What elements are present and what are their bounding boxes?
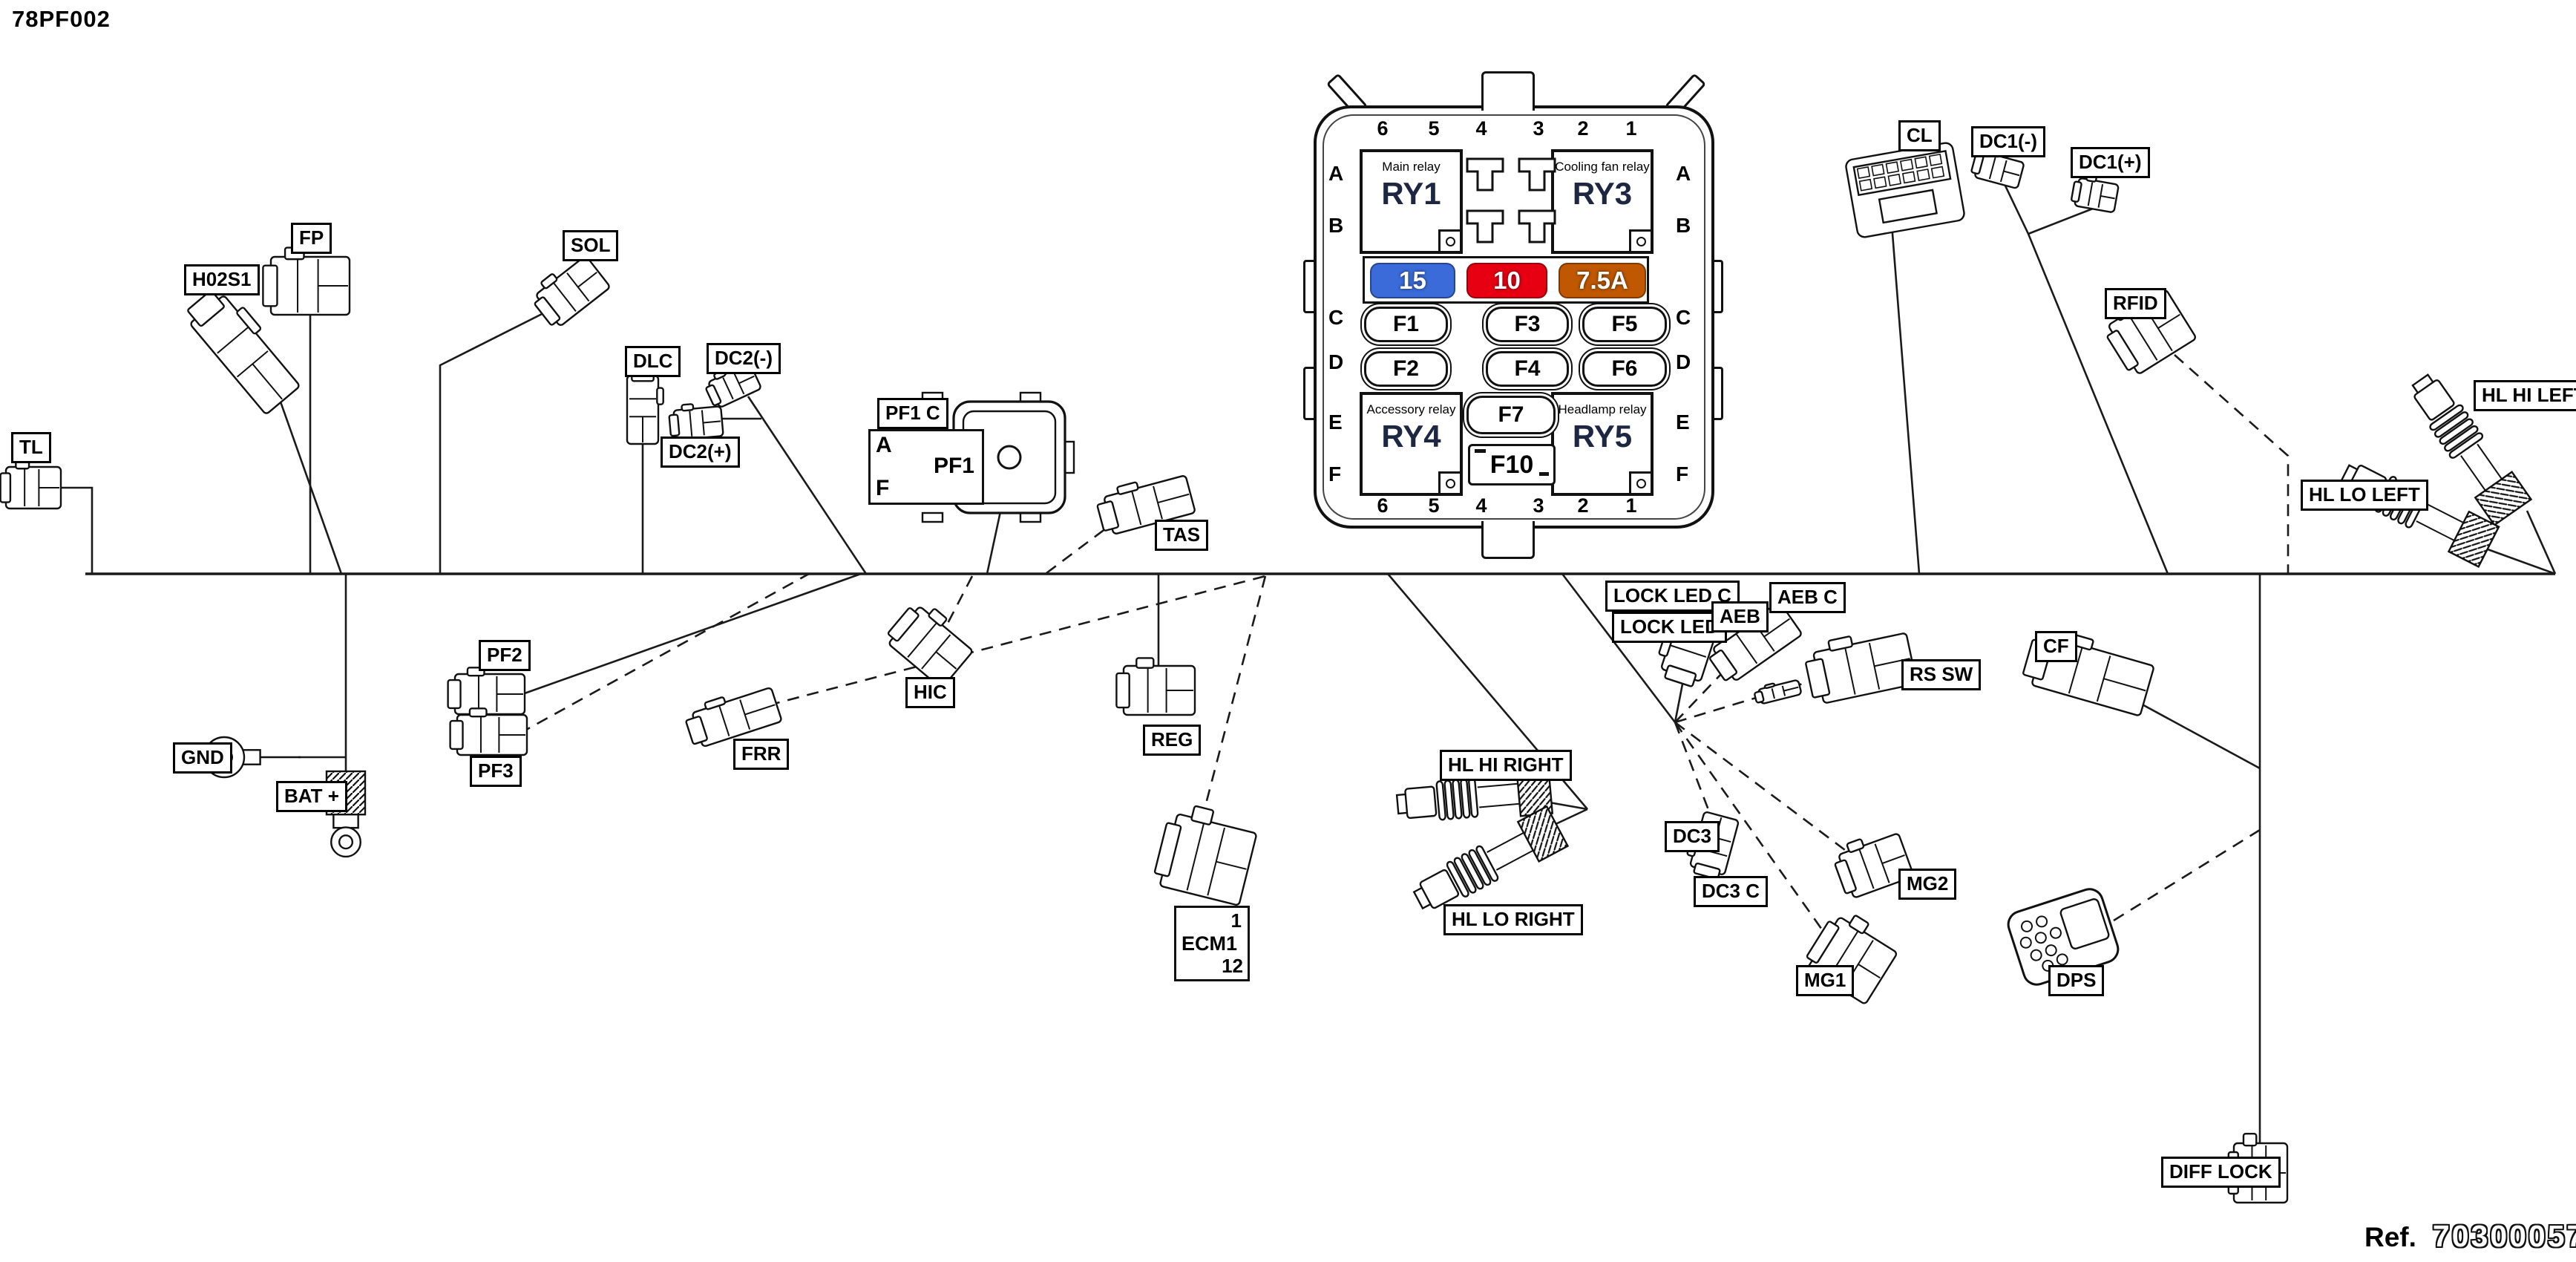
label-pf2: PF2 <box>479 640 531 671</box>
relay-RY5: Headlamp relay RY5 <box>1551 392 1654 496</box>
sol-connector-icon <box>526 250 610 330</box>
label-hl-lo-right: HL LO RIGHT <box>1443 904 1583 935</box>
fusebox-tab-bottom <box>1481 521 1535 559</box>
pin-top-5: 5 <box>1428 117 1439 140</box>
hl-lo-right-connector-icon <box>1408 806 1568 920</box>
wire-cl <box>1892 224 1919 574</box>
fuse-rating-7.5A: 7.5A <box>1559 263 1646 298</box>
pin-bottom-4: 4 <box>1475 494 1487 517</box>
reference-label: Ref. : <box>2364 1222 2416 1262</box>
label-reg: REG <box>1143 725 1201 756</box>
row-letter-right-B: B <box>1676 214 1691 238</box>
pf1-pin-a: A <box>876 433 892 458</box>
label-bat-plus: BAT + <box>276 781 347 812</box>
pf1-code: PF1 <box>934 454 974 479</box>
fuse-F4: F4 <box>1486 351 1569 387</box>
pin-bottom-6: 6 <box>1377 494 1388 517</box>
relay-pin-marker <box>1629 471 1653 495</box>
label-dc1-minus: DC1(-) <box>1971 126 2045 157</box>
dlc-connector-icon <box>627 369 663 444</box>
relay-name: Accessory relay <box>1363 402 1460 417</box>
row-letter-right-F: F <box>1676 462 1688 486</box>
row-letter-right-C: C <box>1676 306 1691 330</box>
wire-pf2 <box>522 574 861 694</box>
inline-splice-connector-icon <box>1753 677 1801 704</box>
label-diff-lock: DIFF LOCK <box>2161 1157 2281 1188</box>
dc1-plus-connector-icon <box>2071 173 2120 213</box>
ecm1-pin-12: 12 <box>1222 955 1243 978</box>
label-aeb: AEB <box>1711 601 1769 632</box>
pin-bottom-2: 2 <box>1577 494 1588 517</box>
pin-top-1: 1 <box>1625 117 1636 140</box>
fuse-box: Main relay RY1 Cooling fan relay RY3 Acc… <box>1312 71 1717 573</box>
fuse-rating-10: 10 <box>1466 263 1547 298</box>
label-tl: TL <box>11 432 51 463</box>
label-dps: DPS <box>2048 965 2104 996</box>
fuse-F10: F10 <box>1468 444 1556 485</box>
label-mg1: MG1 <box>1796 965 1854 996</box>
wire-ecm1 <box>1204 576 1265 812</box>
relay-name: Main relay <box>1363 160 1460 174</box>
wire-dc1-plus <box>2028 209 2093 234</box>
row-letter-right-A: A <box>1676 162 1691 186</box>
fp-connector-icon <box>263 248 350 315</box>
pin-top-2: 2 <box>1577 117 1588 140</box>
wiring-diagram-page: 78PF002 Main relay RY1 Cooling fan relay… <box>0 0 2576 1262</box>
label-cl: CL <box>1898 120 1941 151</box>
wire-hl-lo-right <box>1553 809 1587 825</box>
ecm1-conn-connector-icon <box>1152 800 1259 906</box>
relay-pin-marker <box>1629 229 1653 253</box>
ecm1-code: ECM1 <box>1182 932 1237 955</box>
reference-value: 703000578 <box>2433 1219 2576 1254</box>
wire-dc1-minus <box>2004 183 2168 574</box>
label-tas: TAS <box>1155 520 1208 551</box>
dc2-plus-connector-icon <box>668 402 723 440</box>
label-dc2-plus: DC2(+) <box>661 437 740 468</box>
ecm1-pinout-box: 1 ECM1 12 <box>1174 906 1250 981</box>
pin-bottom-1: 1 <box>1625 494 1636 517</box>
wire-tl <box>61 488 92 574</box>
row-letter-left-B: B <box>1328 214 1343 238</box>
fuse-rating-strip: 15107.5A <box>1363 256 1649 304</box>
label-pf1-c: PF1 C <box>877 398 948 429</box>
label-hl-lo-left: HL LO LEFT <box>2301 480 2428 511</box>
wire-rfid <box>2174 355 2288 574</box>
pf3-connector-icon <box>450 708 527 755</box>
label-rfid: RFID <box>2105 288 2166 319</box>
label-dc2-minus: DC2(-) <box>707 343 781 374</box>
reg-connector-icon <box>1116 658 1195 715</box>
label-hl-hi-left: HL HI LEFT <box>2474 380 2576 411</box>
label-sol: SOL <box>563 230 618 261</box>
page-title: 78PF002 <box>12 6 111 33</box>
row-letter-left-D: D <box>1328 350 1343 374</box>
relay-RY1: Main relay RY1 <box>1360 149 1463 254</box>
wire-dc2-minus <box>748 396 866 574</box>
label-dc3-c: DC3 C <box>1694 876 1768 907</box>
row-letter-left-C: C <box>1328 306 1343 330</box>
label-lock-led: LOCK LED <box>1612 612 1727 643</box>
pin-top-4: 4 <box>1475 117 1487 140</box>
pin-top-6: 6 <box>1377 117 1388 140</box>
label-pf3: PF3 <box>470 756 522 787</box>
tl-connector-icon <box>1 460 61 509</box>
diagram-canvas <box>0 0 2576 1262</box>
label-gnd: GND <box>173 742 232 774</box>
wire-dps <box>2114 830 2260 921</box>
label-cf: CF <box>2035 631 2077 662</box>
label-aeb-c: AEB C <box>1769 582 1846 613</box>
relay-pin-marker <box>1438 229 1462 253</box>
row-letter-right-D: D <box>1676 350 1691 374</box>
pf2-connector-icon <box>448 667 525 714</box>
fusebox-tab-top <box>1481 71 1535 111</box>
label-h02s1: H02S1 <box>184 264 260 295</box>
fuse-F1: F1 <box>1364 307 1448 342</box>
pf1-pinout-box: A PF1 F <box>868 429 984 505</box>
label-rs-sw: RS SW <box>1901 659 1981 690</box>
label-dc1-plus: DC1(+) <box>2071 147 2150 178</box>
row-letter-right-E: E <box>1676 411 1690 434</box>
fuse-F6: F6 <box>1582 351 1667 387</box>
label-fp: FP <box>291 223 332 254</box>
hic-connector-icon <box>883 595 978 688</box>
relay-pin-marker <box>1438 471 1462 495</box>
pin-bottom-3: 3 <box>1533 494 1544 517</box>
reference-number: Ref. : 703000578 <box>2364 1219 2576 1262</box>
fuse-rating-15: 15 <box>1370 263 1455 298</box>
label-hic: HIC <box>905 677 955 708</box>
wire-cf <box>2130 698 2260 768</box>
label-mg2: MG2 <box>1898 869 1956 900</box>
relay-terminal-slots <box>1464 156 1576 249</box>
fuse-F2: F2 <box>1364 351 1448 387</box>
relay-name: Headlamp relay <box>1554 402 1651 417</box>
relay-RY4: Accessory relay RY4 <box>1360 392 1463 496</box>
pf1-pin-f: F <box>876 476 889 501</box>
row-letter-left-A: A <box>1328 162 1343 186</box>
relay-code: RY1 <box>1363 176 1460 212</box>
row-letter-left-E: E <box>1328 411 1343 434</box>
row-letter-left-F: F <box>1328 462 1341 486</box>
rs-sw-connector-icon <box>1802 625 1917 706</box>
label-dlc: DLC <box>625 346 681 377</box>
wire-sol <box>440 309 552 574</box>
relay-code: RY4 <box>1363 419 1460 454</box>
relay-code: RY5 <box>1554 419 1651 454</box>
ecm1-pin-1: 1 <box>1231 909 1242 932</box>
fuse-F5: F5 <box>1582 307 1667 342</box>
label-hl-hi-right: HL HI RIGHT <box>1440 750 1572 781</box>
fuse-F3: F3 <box>1486 307 1569 342</box>
label-frr: FRR <box>733 739 789 770</box>
fuse-F7: F7 <box>1466 396 1556 434</box>
label-dc3: DC3 <box>1665 821 1720 852</box>
pin-bottom-5: 5 <box>1428 494 1439 517</box>
cl-connector-icon <box>1845 142 1965 238</box>
pin-top-3: 3 <box>1533 117 1544 140</box>
